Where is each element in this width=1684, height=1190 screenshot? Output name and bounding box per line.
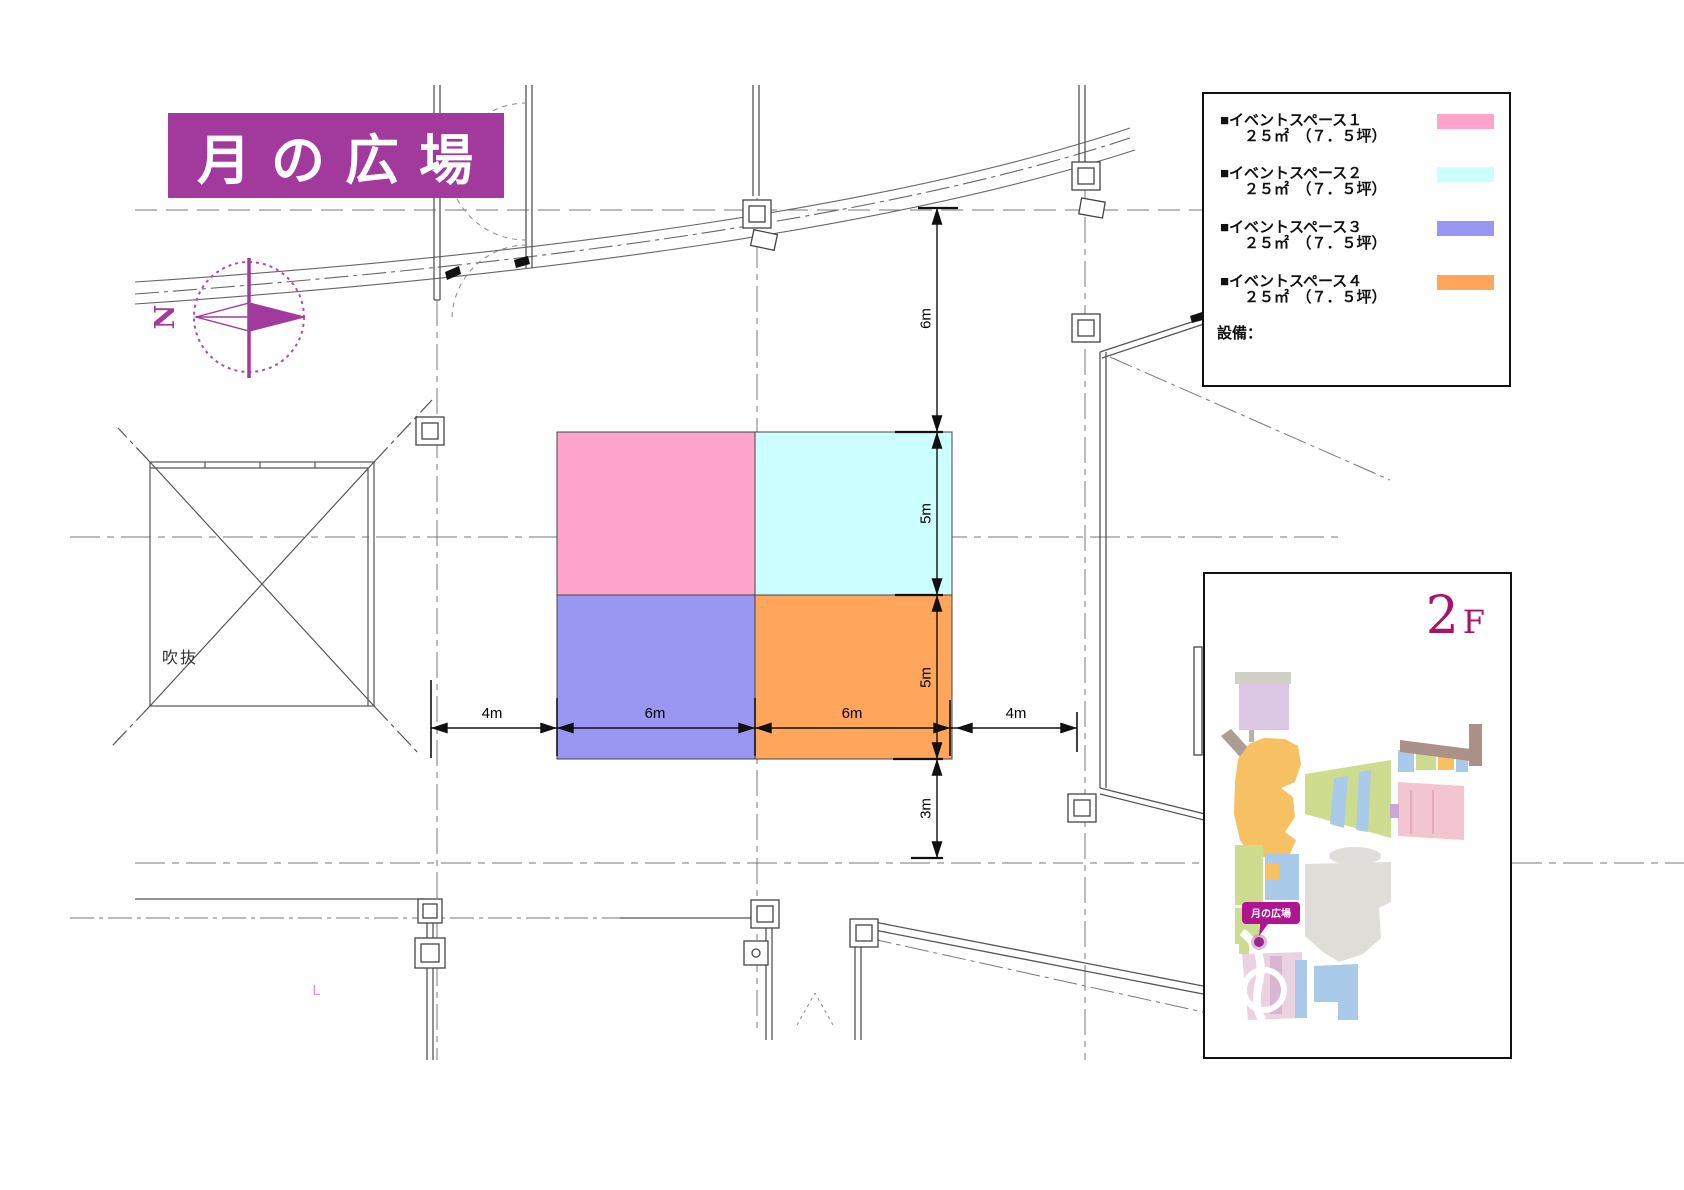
dim-label-v-5m-1: 5m [918,494,935,534]
legend-swatch-1 [1437,114,1494,129]
compass-icon [194,258,304,378]
legend-item-2: ■イベントスペース２ ２５㎡ （７．５坪） [1220,166,1387,198]
dim-label-v-6m: 6m [918,299,935,339]
legend-swatch-3 [1437,221,1494,236]
floor-label: 2 F [1426,586,1486,646]
legend-item-3-area: ２５㎡ （７．５坪） [1220,236,1387,252]
floor-map-inset: 2 F [1203,572,1512,1059]
equipment-label: 設備： [1217,322,1262,343]
event-space-3-area [557,595,755,759]
legend-item-1-area: ２５㎡ （７．５坪） [1220,129,1387,145]
mall-minimap: 月の広場 [1205,574,1509,1056]
compass-north-label: N [150,300,184,334]
dim-label-v-5m-2: 5m [918,658,935,698]
legend-item-1-label: ■イベントスペース１ [1220,113,1387,129]
event-space-1-area [557,432,755,595]
corner-mark: L [312,983,321,1000]
legend-item-2-label: ■イベントスペース２ [1220,166,1387,182]
page-title: 月の広場 [179,116,493,195]
dim-label-h-6m-left: 6m [635,705,675,722]
floor-number: 2 [1426,586,1459,646]
atrium-outline [112,400,432,755]
location-dot [1254,937,1264,947]
legend-item-4-area: ２５㎡ （７．５坪） [1220,290,1387,306]
title-banner: 月の広場 [168,113,504,198]
dim-label-h-6m-right: 6m [832,705,872,722]
legend-item-3: ■イベントスペース３ ２５㎡ （７．５坪） [1220,220,1387,252]
legend-item-4-label: ■イベントスペース４ [1220,274,1387,290]
legend-panel: ■イベントスペース１ ２５㎡ （７．５坪） ■イベントスペース２ ２５㎡ （７．… [1202,92,1511,387]
dim-label-h-4m-left: 4m [472,705,512,722]
legend-swatch-2 [1437,167,1494,182]
location-tag-text: 月の広場 [1250,907,1291,920]
floor-plan-page: 月の広場 N 吹抜 L 6m 5m 5m 3m 4m 6m 6m 4m ■イベン… [0,0,1684,1190]
dim-label-h-4m-right: 4m [996,705,1036,722]
dim-label-v-3m: 3m [918,789,935,829]
legend-item-3-label: ■イベントスペース３ [1220,220,1387,236]
atrium-label: 吹抜 [162,644,198,668]
wall-end-markers [445,256,1203,323]
legend-item-1: ■イベントスペース１ ２５㎡ （７．５坪） [1220,113,1387,145]
legend-item-4: ■イベントスペース４ ２５㎡ （７．５坪） [1220,274,1387,306]
legend-item-2-area: ２５㎡ （７．５坪） [1220,182,1387,198]
floor-letter: F [1463,603,1486,641]
legend-swatch-4 [1437,275,1494,290]
